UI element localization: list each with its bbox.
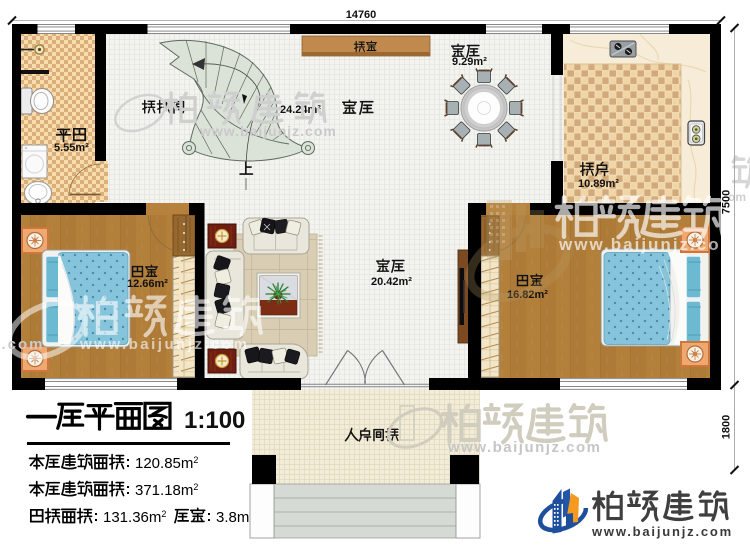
svg-text:www.baijunjz.com: www.baijunjz.com [447,439,601,456]
svg-text:120.85m2: 120.85m2 [135,455,198,472]
svg-text:www.baijunjz.com: www.baijunjz.com [558,235,738,254]
svg-text:z.com: z.com [0,336,45,353]
svg-text:www.baijunjz.com: www.baijunjz.com [591,524,733,539]
svg-text:12.66m²: 12.66m² [127,278,168,290]
svg-text:20.42m²: 20.42m² [371,276,412,288]
svg-text:7500: 7500 [721,190,733,214]
svg-text:www.baijunjz.com: www.baijunjz.com [79,336,249,353]
svg-text:10.89m²: 10.89m² [578,178,619,190]
svg-text:1:100: 1:100 [184,407,245,434]
svg-text:5.55m²: 5.55m² [54,142,89,154]
svg-text:131.36m2: 131.36m2 [103,509,166,526]
svg-text:3.8m: 3.8m [216,509,249,526]
svg-text:1800: 1800 [721,415,733,439]
svg-text:9.29m²: 9.29m² [452,56,487,68]
svg-text:14760: 14760 [346,9,377,21]
svg-text:371.18m2: 371.18m2 [135,482,198,499]
svg-text:www.baijunjz.com: www.baijunjz.com [199,123,337,139]
